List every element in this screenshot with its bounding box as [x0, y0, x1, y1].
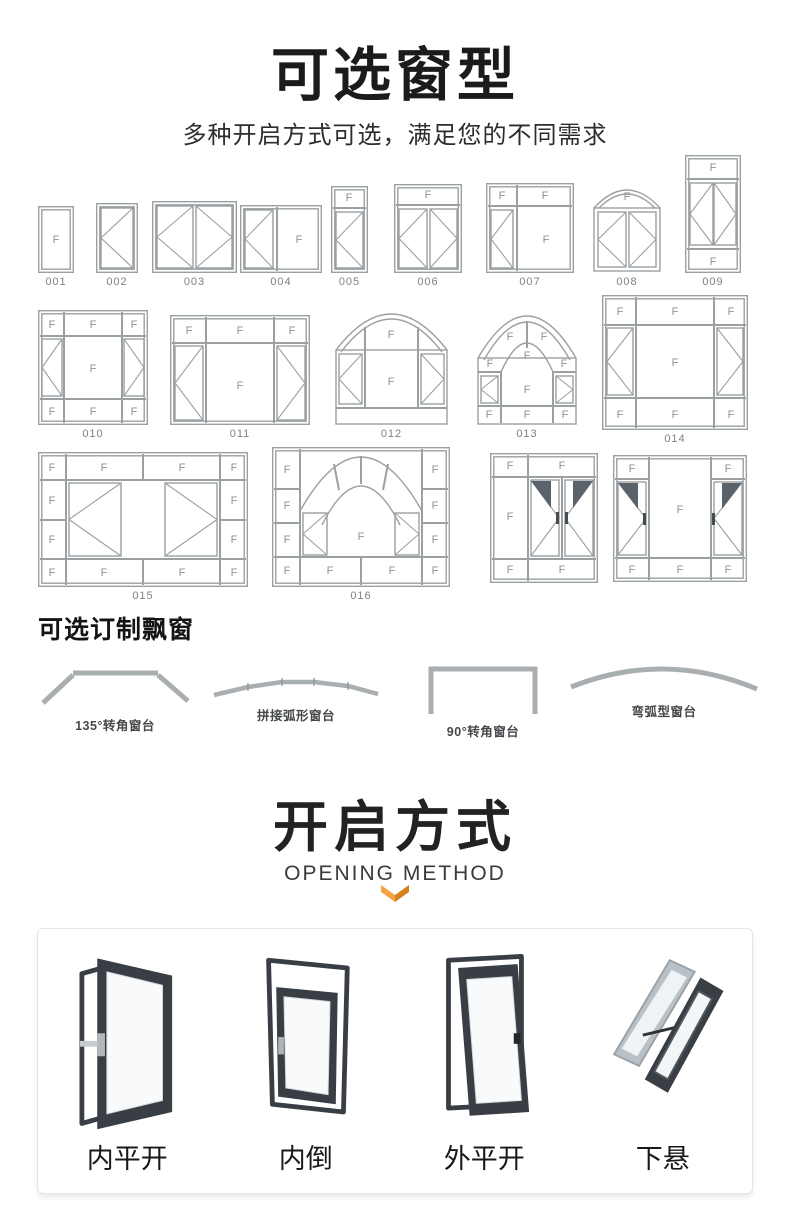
svg-text:F: F: [388, 329, 395, 341]
svg-text:F: F: [237, 325, 244, 337]
svg-text:F: F: [725, 564, 732, 576]
window-type-code: 001: [38, 276, 74, 288]
svg-text:F: F: [131, 319, 138, 331]
window-type-001: F001: [38, 206, 74, 288]
figure-label: 内倒: [217, 1137, 396, 1176]
svg-text:F: F: [101, 567, 108, 579]
svg-text:F: F: [486, 409, 493, 421]
svg-text:F: F: [49, 567, 56, 579]
svg-text:F: F: [231, 534, 238, 546]
svg-text:F: F: [562, 409, 569, 421]
figure-label: 内平开: [38, 1137, 217, 1176]
bay-90-diagram-icon: [424, 662, 542, 716]
svg-text:F: F: [296, 234, 303, 246]
svg-text:F: F: [543, 234, 550, 246]
window-type-diagram: FFFFF: [490, 453, 598, 583]
window-type-003: 003: [152, 201, 237, 288]
svg-text:F: F: [725, 463, 732, 475]
window-type-008: F008: [593, 181, 661, 288]
svg-text:F: F: [49, 462, 56, 474]
bay-window-curved: 弯弧型窗台: [566, 654, 762, 720]
bay-window-spliced-arc: 拼接弧形窗台: [212, 676, 380, 724]
svg-text:F: F: [672, 357, 679, 369]
figure-inward-casement: 内平开: [38, 943, 217, 1176]
window-type-005: F005: [331, 186, 368, 288]
svg-text:F: F: [179, 462, 186, 474]
opening-method-panel: 内平开 内倒 外平开: [37, 928, 753, 1194]
svg-text:F: F: [289, 325, 296, 337]
svg-text:F: F: [672, 409, 679, 421]
window-type-code: 003: [152, 276, 237, 288]
svg-text:F: F: [524, 409, 531, 421]
svg-text:F: F: [677, 504, 684, 516]
opening-method-title: 开启方式: [0, 782, 790, 862]
window-type-012: FF012: [335, 310, 448, 440]
svg-text:F: F: [231, 462, 238, 474]
svg-text:F: F: [231, 567, 238, 579]
svg-text:F: F: [507, 564, 514, 576]
window-type-code: 008: [593, 276, 661, 288]
svg-text:F: F: [90, 406, 97, 418]
chevron-down-icon: [378, 885, 412, 907]
window-type-code: 016: [272, 590, 450, 602]
window-type-code: 007: [486, 276, 574, 288]
svg-text:F: F: [432, 464, 439, 476]
figure-inward-tilt: 内倒: [217, 943, 396, 1176]
window-type-code: 013: [477, 428, 577, 440]
svg-text:F: F: [672, 306, 679, 318]
svg-text:F: F: [624, 191, 631, 203]
window-type-code: 014: [602, 433, 748, 445]
window-type-002: 002: [96, 203, 138, 288]
svg-text:F: F: [425, 189, 432, 201]
svg-text:F: F: [186, 325, 193, 337]
opening-method-subtitle: OPENING METHOD: [0, 862, 790, 886]
window-type-code: 004: [240, 276, 322, 288]
svg-text:F: F: [432, 500, 439, 512]
figure-label: 外平开: [395, 1137, 574, 1176]
bay-curve-diagram-icon: [566, 654, 762, 696]
svg-text:F: F: [101, 462, 108, 474]
window-type-004: F004: [240, 205, 322, 288]
svg-text:F: F: [432, 565, 439, 577]
window-type-014: FFFFFFF014: [602, 295, 748, 445]
svg-text:F: F: [358, 531, 365, 543]
svg-text:F: F: [284, 500, 291, 512]
svg-text:F: F: [284, 464, 291, 476]
svg-text:F: F: [90, 319, 97, 331]
window-type-011: FFFF011: [170, 315, 310, 440]
outward-casement-window-image: [409, 943, 559, 1135]
figure-label: 下悬: [574, 1137, 753, 1176]
svg-text:F: F: [541, 331, 548, 343]
window-diagram-layer: F001002003F004F005F006FFF007F008FF009FFF…: [0, 0, 790, 620]
svg-text:F: F: [131, 406, 138, 418]
window-type-code: 002: [96, 276, 138, 288]
svg-text:F: F: [90, 363, 97, 375]
svg-text:F: F: [617, 306, 624, 318]
svg-text:F: F: [710, 162, 717, 174]
svg-text:F: F: [507, 511, 514, 523]
window-type-code: 006: [394, 276, 462, 288]
window-type-015: FFFFFFFFFFFF015: [38, 452, 248, 602]
svg-text:F: F: [237, 380, 244, 392]
svg-text:F: F: [49, 406, 56, 418]
inward-tilt-window-image: [231, 943, 381, 1135]
svg-text:F: F: [507, 460, 514, 472]
svg-text:F: F: [499, 190, 506, 202]
svg-text:F: F: [559, 564, 566, 576]
svg-text:F: F: [561, 358, 568, 370]
bottom-hung-window-image: [588, 943, 738, 1135]
window-type-code: 012: [335, 428, 448, 440]
figure-bottom-hung: 下悬: [574, 943, 753, 1176]
bay-label: 拼接弧形窗台: [212, 705, 380, 724]
window-type-007: FFF007: [486, 183, 574, 288]
window-type-code: 005: [331, 276, 368, 288]
bay-window-90-corner: 90°转角窗台: [424, 662, 542, 740]
svg-text:F: F: [728, 306, 735, 318]
svg-text:F: F: [507, 331, 514, 343]
window-type-006: F006: [394, 184, 462, 288]
window-type-009: FF009: [685, 155, 741, 288]
svg-text:F: F: [559, 460, 566, 472]
svg-text:F: F: [388, 376, 395, 388]
window-type-code: 010: [38, 428, 148, 440]
svg-text:F: F: [49, 534, 56, 546]
svg-text:F: F: [346, 192, 353, 204]
window-type-code: 011: [170, 428, 310, 440]
svg-text:F: F: [728, 409, 735, 421]
window-type-diagram: FFFFFF: [613, 455, 747, 582]
product-detail-page: 可选窗型 多种开启方式可选，满足您的不同需求 F001002003F004F00…: [0, 0, 790, 1224]
svg-text:F: F: [327, 565, 334, 577]
svg-text:F: F: [49, 319, 56, 331]
bay-label: 135°转角窗台: [34, 715, 196, 734]
window-type-010: FFFFFFF010: [38, 310, 148, 440]
window-type-code: 009: [685, 276, 741, 288]
svg-text:F: F: [487, 358, 494, 370]
bay-135-diagram-icon: [34, 666, 196, 710]
bay-window-heading: 可选订制飘窗: [38, 610, 194, 646]
window-type-016: FFFFFFFFFFF016: [272, 447, 450, 602]
window-type-013: FFFFFFFFF013: [477, 310, 577, 440]
svg-text:F: F: [710, 256, 717, 268]
svg-text:F: F: [677, 564, 684, 576]
svg-text:F: F: [179, 567, 186, 579]
svg-text:F: F: [49, 495, 56, 507]
figure-outward-casement: 外平开: [395, 943, 574, 1176]
svg-text:F: F: [629, 564, 636, 576]
svg-text:F: F: [53, 234, 60, 246]
bay-label: 90°转角窗台: [424, 721, 542, 740]
bay-window-135-corner: 135°转角窗台: [34, 666, 196, 734]
svg-text:F: F: [524, 384, 531, 396]
svg-text:F: F: [231, 495, 238, 507]
svg-text:F: F: [617, 409, 624, 421]
svg-text:F: F: [629, 463, 636, 475]
svg-text:F: F: [284, 565, 291, 577]
svg-text:F: F: [524, 350, 531, 362]
svg-text:F: F: [389, 565, 396, 577]
bay-arc-segments-icon: [212, 676, 380, 700]
svg-text:F: F: [542, 190, 549, 202]
svg-text:F: F: [432, 534, 439, 546]
inward-casement-window-image: [52, 943, 202, 1135]
window-type-code: 015: [38, 590, 248, 602]
svg-text:F: F: [284, 534, 291, 546]
bay-label: 弯弧型窗台: [566, 701, 762, 720]
